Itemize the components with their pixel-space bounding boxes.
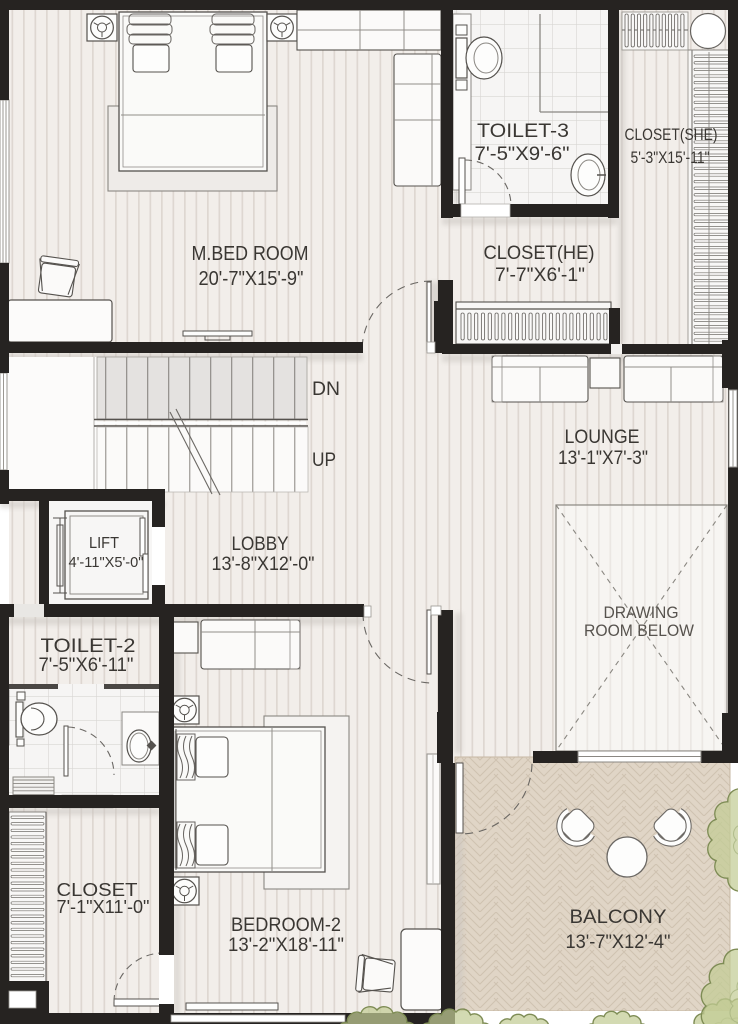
svg-text:BEDROOM-2: BEDROOM-2 xyxy=(231,915,341,936)
svg-text:LIFT: LIFT xyxy=(89,535,119,552)
svg-text:7'-1"X11'-0": 7'-1"X11'-0" xyxy=(57,897,150,917)
svg-text:5'-3"X15'-11": 5'-3"X15'-11" xyxy=(631,148,710,167)
svg-text:CLOSET(HE): CLOSET(HE) xyxy=(484,243,595,264)
svg-text:LOBBY: LOBBY xyxy=(232,534,289,555)
svg-text:7'-5"X6'-11": 7'-5"X6'-11" xyxy=(39,655,134,676)
svg-text:BALCONY: BALCONY xyxy=(570,907,667,928)
svg-text:13'-2"X18'-11": 13'-2"X18'-11" xyxy=(228,935,344,956)
svg-text:TOILET-2: TOILET-2 xyxy=(41,636,136,657)
svg-text:DRAWING: DRAWING xyxy=(604,603,679,622)
svg-text:7'-7"X6'-1": 7'-7"X6'-1" xyxy=(495,265,585,286)
svg-text:TOILET-3: TOILET-3 xyxy=(477,121,569,142)
svg-text:13'-8"X12'-0": 13'-8"X12'-0" xyxy=(212,554,315,575)
svg-text:UP: UP xyxy=(312,450,336,471)
svg-text:13'-7"X12'-4": 13'-7"X12'-4" xyxy=(566,932,671,953)
svg-text:20'-7"X15'-9": 20'-7"X15'-9" xyxy=(199,268,304,290)
svg-text:13'-1"X7'-3": 13'-1"X7'-3" xyxy=(558,448,648,469)
svg-text:DN: DN xyxy=(312,379,340,400)
svg-text:4'-11"X5'-0": 4'-11"X5'-0" xyxy=(69,554,144,571)
svg-text:ROOM BELOW: ROOM BELOW xyxy=(584,621,694,640)
svg-text:M.BED ROOM: M.BED ROOM xyxy=(192,243,309,265)
svg-text:CLOSET(SHE): CLOSET(SHE) xyxy=(625,125,718,144)
svg-text:7'-5"X9'-6": 7'-5"X9'-6" xyxy=(475,144,570,165)
svg-text:LOUNGE: LOUNGE xyxy=(565,427,640,448)
